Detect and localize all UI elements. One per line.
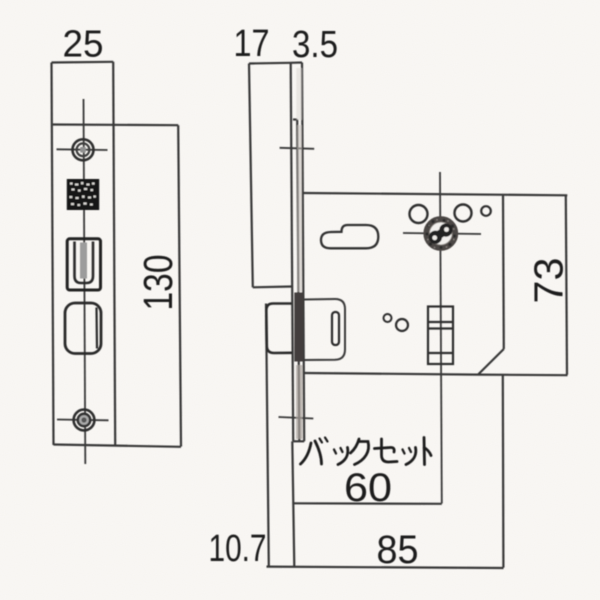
svg-text:25: 25 — [63, 24, 104, 66]
svg-text:130: 130 — [135, 255, 181, 311]
svg-text:10.7: 10.7 — [209, 528, 267, 570]
svg-text:3.5: 3.5 — [292, 24, 338, 66]
svg-text:73: 73 — [526, 258, 572, 304]
svg-text:85: 85 — [377, 528, 419, 572]
svg-text:60: 60 — [344, 466, 392, 510]
svg-text:17: 17 — [234, 23, 270, 65]
